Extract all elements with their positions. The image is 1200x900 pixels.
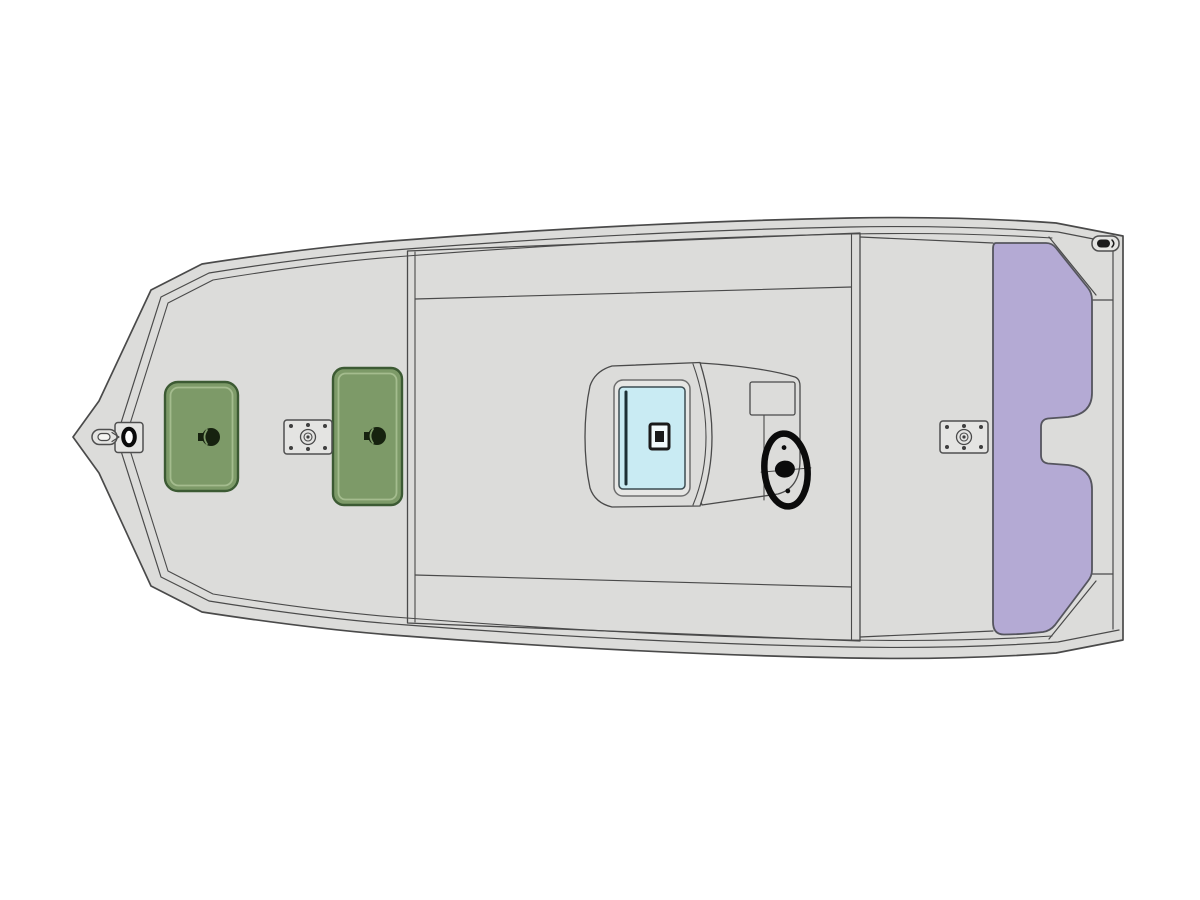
stern-cleat-horn (1097, 240, 1110, 248)
boat-floorplan-canvas (0, 0, 1200, 900)
bow-storage-hatch[interactable] (165, 382, 238, 491)
pedestal-base-front (284, 420, 332, 454)
pedestal-hub-pin (962, 435, 965, 438)
boat-floorplan-image (0, 0, 1200, 900)
helm-seat-box (750, 382, 795, 415)
stern-cleat (1092, 236, 1119, 251)
boat (73, 218, 1123, 659)
bow-cleat-slot (98, 434, 110, 441)
pedestal-base-rear (940, 421, 988, 453)
bow-eye-icon (123, 429, 135, 446)
latch-core (655, 431, 664, 442)
pedestal-hub-pin (306, 435, 309, 438)
console-hatch-latch-icon[interactable] (650, 424, 669, 449)
mid-storage-hatch[interactable] (333, 368, 402, 505)
